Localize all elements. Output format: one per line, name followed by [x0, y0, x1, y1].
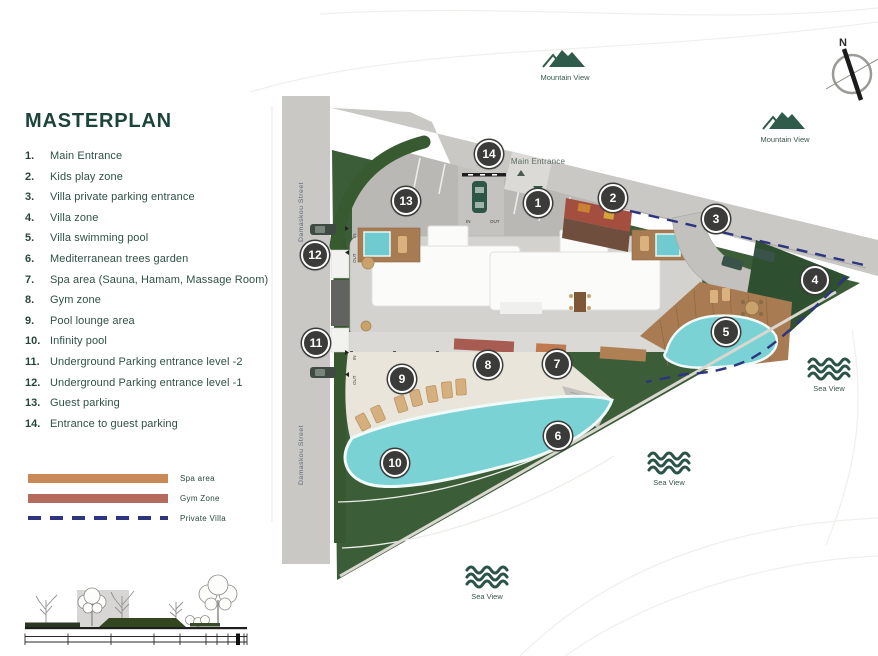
waves-icon: [649, 453, 689, 473]
plan-marker-8: 8: [474, 351, 502, 379]
private-villa-key-label: Private Villa: [180, 514, 226, 523]
legend-item-number: 1.: [25, 150, 50, 162]
legend-item-number: 6.: [25, 253, 50, 265]
legend-item-number: 8.: [25, 294, 50, 306]
waves-icon: [467, 567, 507, 587]
legend-item-number: 4.: [25, 212, 50, 224]
legend-item-number: 7.: [25, 274, 50, 286]
gym-zone-swatch: [28, 494, 168, 503]
plan-marker-5: 5: [712, 318, 740, 346]
barrier-dashes: [468, 174, 497, 176]
in-label-ramp2: IN: [352, 356, 357, 361]
legend-item: 4.Villa zone: [25, 212, 268, 224]
mountain-view-top: Mountain View: [540, 50, 590, 82]
ground-strip-right: [190, 623, 220, 627]
plan-marker-13: 13: [392, 187, 420, 215]
legend-item-number: 3.: [25, 191, 50, 203]
waves-icon: [809, 359, 849, 379]
legend-item: 10.Infinity pool: [25, 335, 268, 347]
legend-item-label: Villa zone: [50, 212, 99, 224]
sea-view-middle: Sea View: [649, 453, 689, 487]
scale-bar-end: [236, 634, 240, 646]
sea-view-label: Sea View: [471, 592, 503, 601]
mountain-icon: [769, 112, 805, 129]
legend-item: 1.Main Entrance: [25, 150, 268, 162]
mountain-view-label: Mountain View: [540, 73, 590, 82]
key-row-spa: Spa area: [28, 473, 226, 483]
ground-mound: [99, 618, 186, 627]
legend-item-number: 10.: [25, 335, 50, 347]
out-label-ramp2: OUT: [352, 375, 357, 385]
ground-strip-left: [25, 623, 80, 628]
color-key: Spa area Gym Zone Private Villa: [28, 473, 226, 533]
sea-view-label: Sea View: [653, 478, 685, 487]
page-title: MASTERPLAN: [25, 110, 268, 133]
guest-car-window2: [475, 202, 484, 208]
legend-item-label: Underground Parking entrance level -1: [50, 377, 243, 389]
mountain-icon: [549, 50, 585, 67]
legend-item-label: Pool lounge area: [50, 315, 135, 327]
legend-item-number: 12.: [25, 377, 50, 389]
sea-view-label: Sea View: [813, 384, 845, 393]
legend-item: 11.Underground Parking entrance level -2: [25, 356, 268, 368]
plan-marker-3: 3: [702, 205, 730, 233]
legend-item-label: Gym zone: [50, 294, 101, 306]
plan-marker-12: 12: [301, 241, 329, 269]
parking-ramps: [331, 250, 349, 352]
mountain-view-label: Mountain View: [760, 135, 810, 144]
in-label-guest: IN: [466, 219, 471, 224]
private-villa-swatch: [28, 516, 168, 520]
ground-baseline: [25, 627, 247, 629]
legend-item: 5.Villa swimming pool: [25, 232, 268, 244]
legend-item: 12.Underground Parking entrance level -1: [25, 377, 268, 389]
legend-item-number: 11.: [25, 356, 50, 368]
out-label-ramp1: OUT: [352, 253, 357, 263]
legend-item-label: Mediterranean trees garden: [50, 253, 188, 265]
mountain-view-right: Mountain View: [760, 112, 810, 144]
legend-item-label: Main Entrance: [50, 150, 122, 162]
legend-item-label: Villa private parking entrance: [50, 191, 195, 203]
plan-marker-4: 4: [801, 266, 829, 294]
street-label-bottom: Damaskou Street: [298, 425, 305, 485]
scale-bar: [25, 634, 247, 646]
plan-marker-6: 6: [544, 422, 572, 450]
elevation-sketch: [14, 556, 254, 652]
legend-item-number: 13.: [25, 397, 50, 409]
legend-item: 9.Pool lounge area: [25, 315, 268, 327]
legend-item: 8.Gym zone: [25, 294, 268, 306]
out-label-guest: OUT: [490, 219, 500, 224]
legend-panel: MASTERPLAN 1.Main Entrance 2.Kids play z…: [25, 110, 268, 438]
legend-item-label: Entrance to guest parking: [50, 418, 178, 430]
legend-item-number: 9.: [25, 315, 50, 327]
legend-item-label: Guest parking: [50, 397, 120, 409]
key-row-gym: Gym Zone: [28, 493, 226, 503]
compass-north-label: N: [839, 37, 847, 49]
legend-item-number: 2.: [25, 171, 50, 183]
guest-car-window: [475, 187, 484, 193]
sketch-tree-bare: [36, 595, 57, 626]
sea-view-right: Sea View: [809, 359, 849, 393]
legend-item-label: Kids play zone: [50, 171, 123, 183]
plan-marker-2: 2: [599, 184, 627, 212]
compass: N: [826, 37, 878, 100]
legend-item-number: 5.: [25, 232, 50, 244]
in-label-ramp1: IN: [352, 234, 357, 239]
plan-marker-7: 7: [543, 350, 571, 378]
legend-item-label: Villa swimming pool: [50, 232, 148, 244]
street-label-top: Damaskou Street: [298, 182, 305, 242]
gym-zone-key-label: Gym Zone: [180, 494, 220, 503]
legend-item: 7.Spa area (Sauna, Hamam, Massage Room): [25, 274, 268, 286]
plan-marker-9: 9: [388, 365, 416, 393]
guest-car: [472, 181, 487, 213]
legend-item-label: Underground Parking entrance level -2: [50, 356, 243, 368]
building-step: [500, 302, 542, 314]
masterplan-document: { "title": "MASTERPLAN", "legend": { "it…: [0, 0, 878, 656]
main-entrance-label: Main Entrance: [507, 157, 569, 167]
plan-marker-14: 14: [475, 140, 503, 168]
legend-item: 3.Villa private parking entrance: [25, 191, 268, 203]
legend-item-label: Infinity pool: [50, 335, 107, 347]
plan-marker-11: 11: [302, 329, 330, 357]
spa-area-key-label: Spa area: [180, 474, 215, 483]
spa-area-swatch: [28, 474, 168, 483]
plan-marker-10: 10: [381, 449, 409, 477]
legend-item: 14.Entrance to guest parking: [25, 418, 268, 430]
legend-item: 6.Mediterranean trees garden: [25, 253, 268, 265]
legend-item: 13.Guest parking: [25, 397, 268, 409]
key-row-villa: Private Villa: [28, 513, 226, 523]
legend-item-label: Spa area (Sauna, Hamam, Massage Room): [50, 274, 268, 286]
legend-item-number: 14.: [25, 418, 50, 430]
sea-view-bottom: Sea View: [467, 567, 507, 601]
legend-item: 2.Kids play zone: [25, 171, 268, 183]
plan-marker-1: 1: [524, 189, 552, 217]
